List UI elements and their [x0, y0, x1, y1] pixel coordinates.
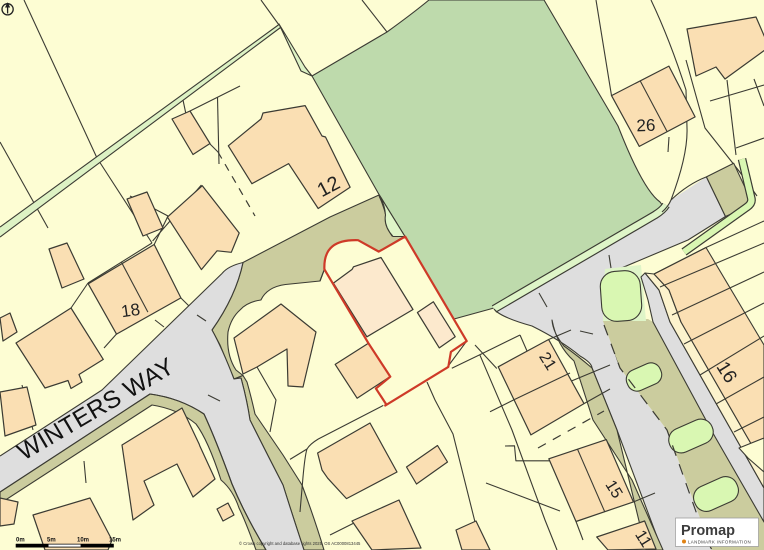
svg-text:Promap: Promap — [681, 523, 735, 539]
svg-text:26: 26 — [636, 116, 656, 136]
svg-text:LANDMARK INFORMATION: LANDMARK INFORMATION — [688, 540, 751, 545]
svg-text:10m: 10m — [77, 538, 89, 544]
svg-text:5m: 5m — [47, 538, 56, 544]
svg-text:18: 18 — [120, 300, 141, 321]
svg-text:© Crown copyright and database: © Crown copyright and database rights 20… — [239, 541, 361, 546]
svg-text:0m: 0m — [16, 538, 25, 544]
svg-text:15m: 15m — [109, 538, 121, 544]
